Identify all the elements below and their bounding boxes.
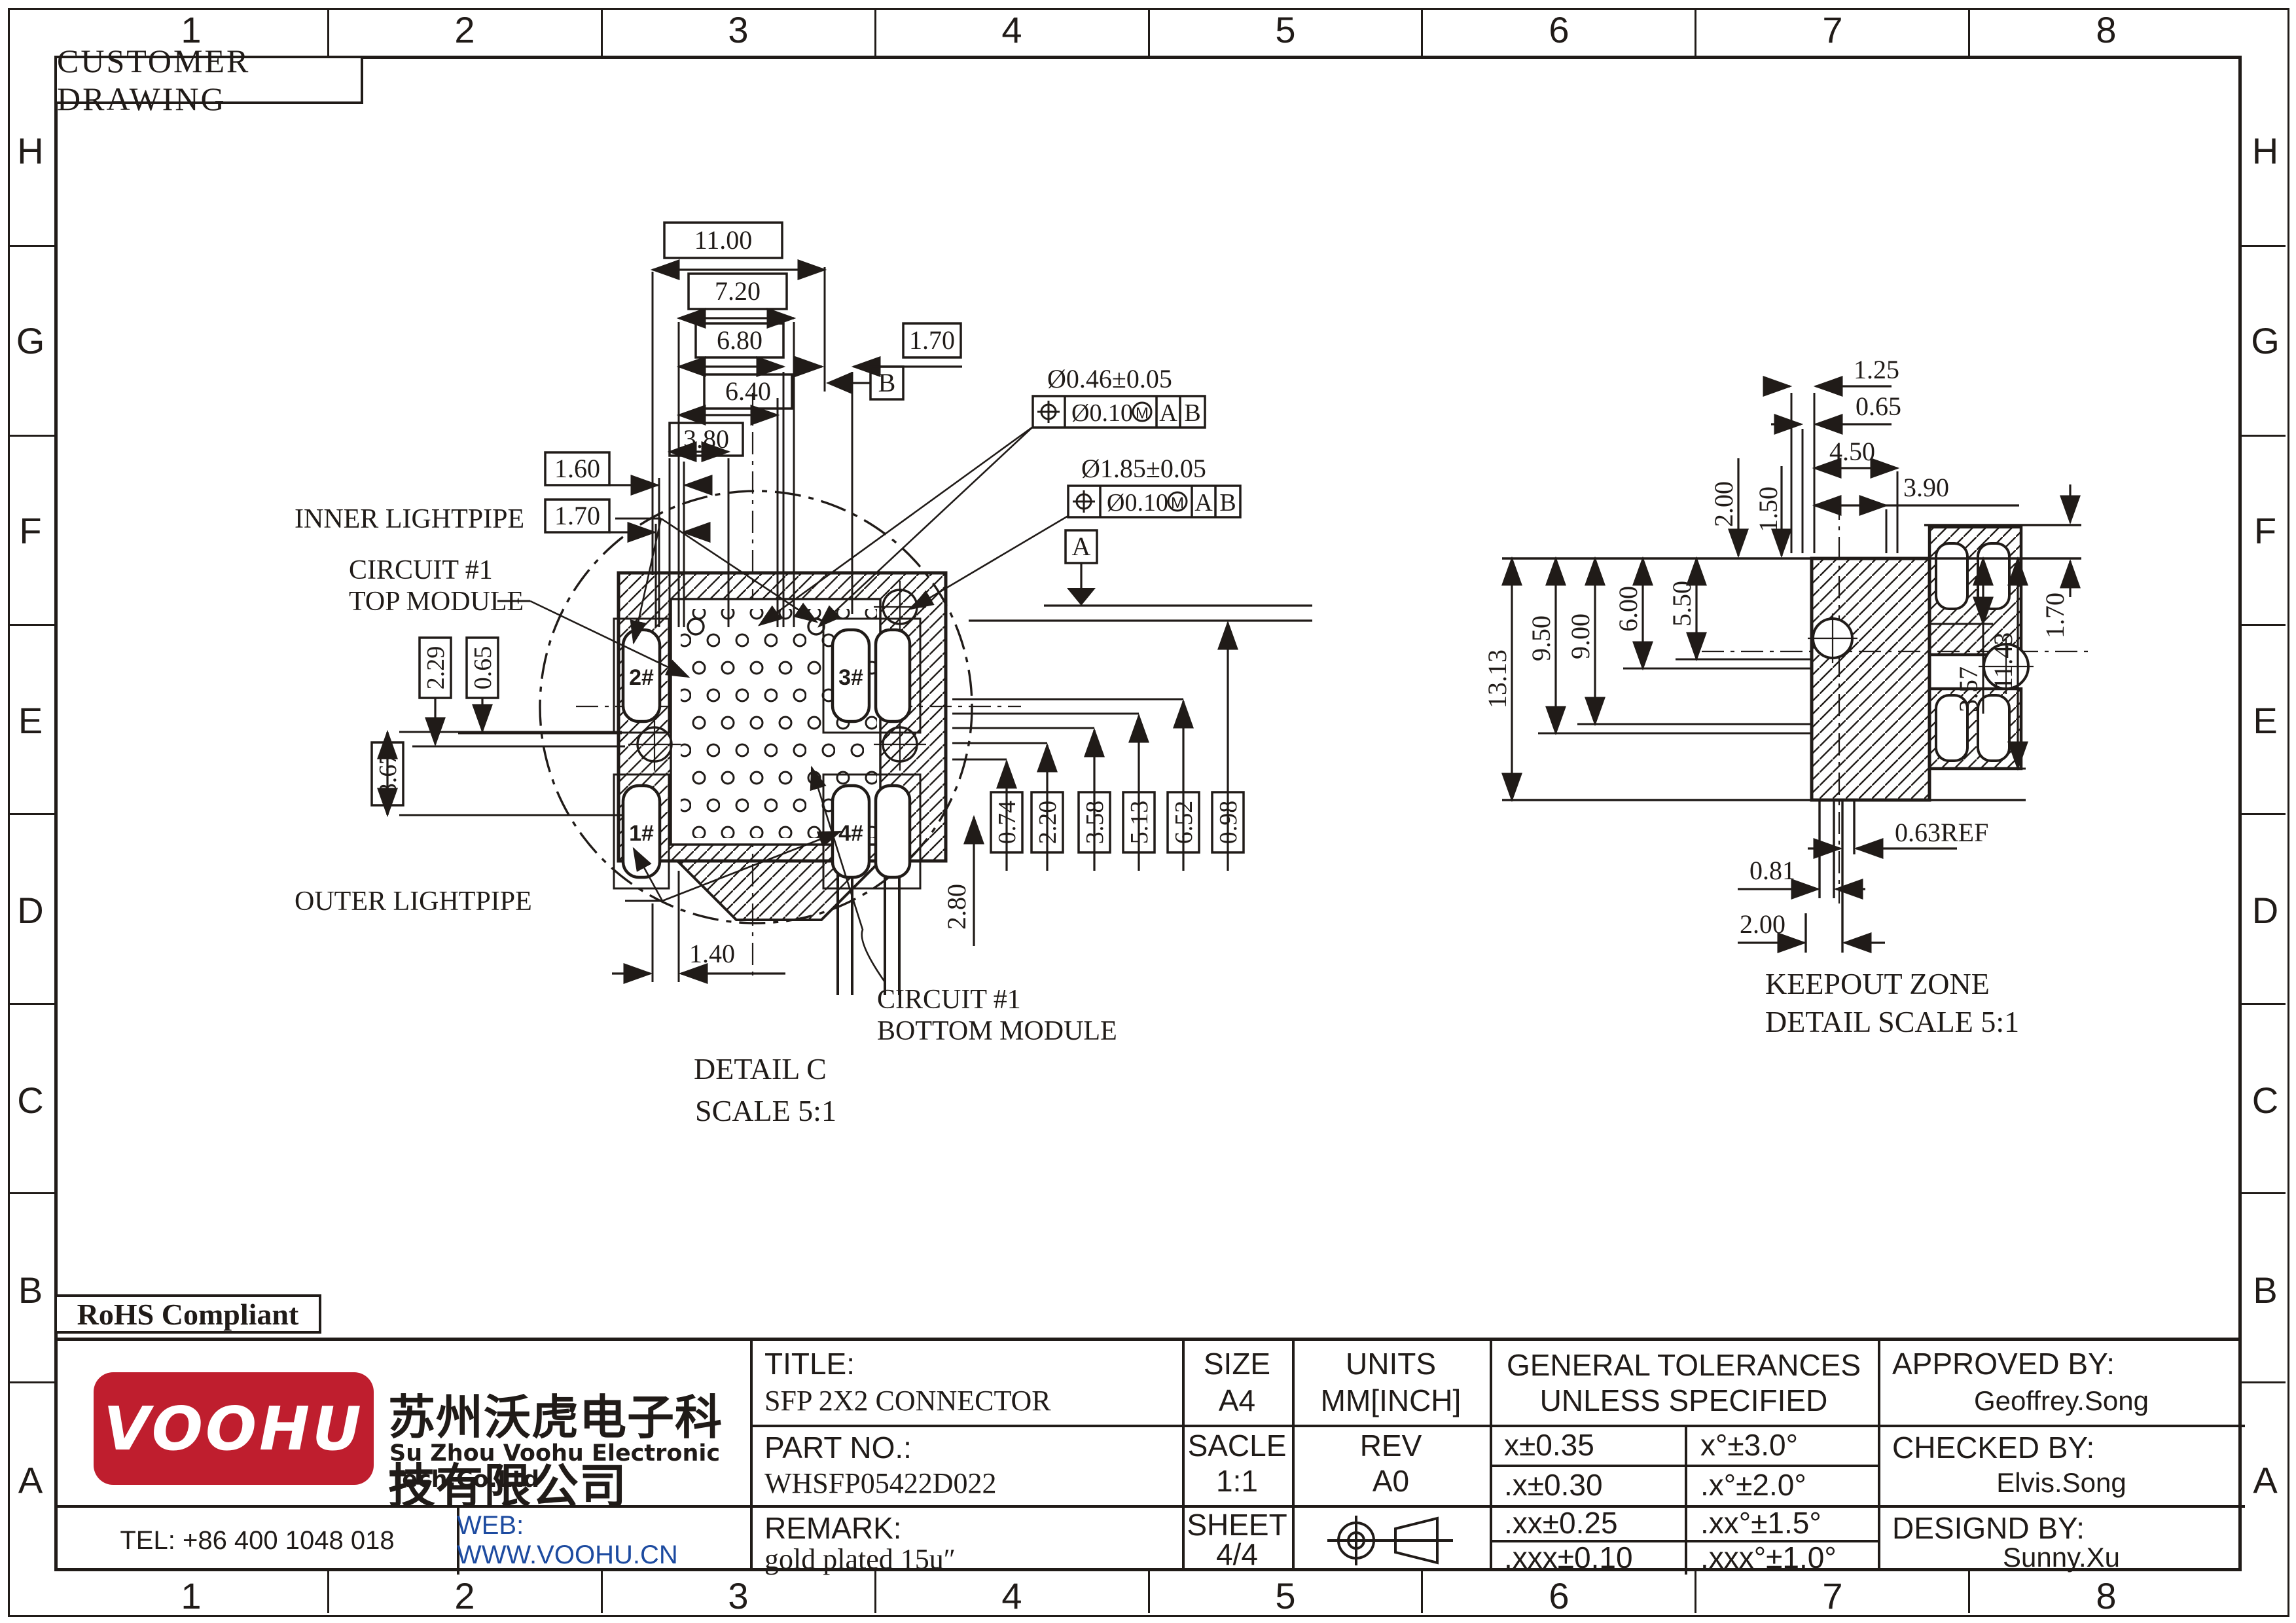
keepout-dims-left: 13.13 9.50 9.00 6.00 5.50	[1482, 558, 1812, 800]
dim-6-00: 6.00	[1613, 586, 1643, 632]
grid-col-label: 5	[1149, 5, 1422, 54]
fcf2-tol: Ø0.10	[1107, 489, 1168, 517]
designed-by-label: DESIGND BY:	[1892, 1510, 2085, 1546]
tol-lin-1: .x±0.30	[1504, 1465, 1685, 1505]
dim-5-13: 5.13	[1126, 801, 1153, 845]
dim-0-65: 0.65	[469, 646, 497, 690]
voohu-logo: VOOHU	[94, 1372, 374, 1485]
datum-b-label: B	[878, 368, 896, 397]
grid-row-label: H	[2242, 56, 2288, 246]
checked-by-label: CHECKED BY:	[1892, 1430, 2094, 1465]
dim-0-65k: 0.65	[1856, 392, 1901, 421]
dim-11-43: 11.43	[1988, 632, 2018, 691]
dim-9-50: 9.50	[1526, 615, 1556, 661]
dim-1-50: 1.50	[1753, 486, 1783, 532]
customer-drawing-badge: CUSTOMER DRAWING	[54, 56, 363, 104]
dim-1-70k: 1.70	[2040, 593, 2070, 638]
fcf1-tol: Ø0.10	[1071, 399, 1133, 427]
title-label: TITLE:	[764, 1346, 855, 1381]
grid-row-label: C	[2242, 1005, 2288, 1195]
detail-c-view: 2# 3# 1# 4# 11.00	[275, 196, 1381, 1139]
dim-0-98: 0.98	[1215, 801, 1242, 845]
approved-by-value: Geoffrey.Song	[1878, 1381, 2245, 1421]
tol-lin-3: .xxx±0.10	[1504, 1540, 1685, 1575]
dim-9-00: 9.00	[1566, 613, 1595, 659]
slot-1-label: 1#	[629, 821, 654, 846]
dim-1-60: 1.60	[554, 454, 600, 483]
dimensions-top: 11.00 7.20 6.80 1.70 6.40 3.80 1.60	[545, 223, 962, 532]
keepout-title: KEEPOUT ZONE DETAIL SCALE 5:1	[1765, 967, 2019, 1038]
grid-col-label: 7	[1696, 5, 1969, 54]
units-label: UNITS	[1292, 1345, 1490, 1383]
grid-row-label: G	[2242, 246, 2288, 435]
tol-ang-0: x°±3.0°	[1700, 1425, 1878, 1465]
dim-7-20: 7.20	[715, 276, 761, 306]
checked-by-value: Elvis.Song	[1878, 1464, 2245, 1502]
grid-row-label: F	[7, 435, 54, 625]
rohs-badge: RoHS Compliant	[54, 1294, 321, 1334]
tol-ang-1: .x°±2.0°	[1700, 1465, 1878, 1505]
dim-0-74: 0.74	[994, 801, 1021, 845]
grid-col-label: 7	[1696, 1574, 1969, 1617]
inner-lightpipe-label: INNER LIGHTPIPE	[295, 504, 524, 534]
dim-1-40: 1.40	[689, 939, 735, 968]
dim-2-20: 2.20	[1034, 801, 1062, 845]
grid-col-label: 6	[1422, 1574, 1696, 1617]
grid-row-label: F	[2242, 435, 2288, 625]
dimensions-left: 2.29 0.65 3.67	[372, 638, 625, 815]
rev-value: A0	[1292, 1463, 1490, 1499]
part-no-value: WHSFP05422D022	[764, 1467, 997, 1500]
dim-3-80: 3.80	[683, 424, 729, 454]
datum-b: B	[826, 367, 903, 399]
fcf2-datum2: B	[1219, 489, 1236, 517]
dim-1-70-left: 1.70	[554, 501, 600, 530]
dim-13-13: 13.13	[1482, 649, 1512, 708]
grid-col-label: 5	[1149, 1574, 1422, 1617]
fcf1-datum2: B	[1184, 399, 1200, 427]
outer-lightpipe-label: OUTER LIGHTPIPE	[295, 886, 532, 917]
divider	[1878, 1341, 1880, 1568]
grid-row-label: C	[7, 1005, 54, 1195]
fcf1-datum1: A	[1159, 399, 1177, 427]
grid-row-label: B	[2242, 1195, 2288, 1385]
divider	[750, 1341, 753, 1568]
dim-3-58: 3.58	[1081, 801, 1109, 845]
grid-row-label: E	[7, 625, 54, 815]
grid-row-label: A	[2242, 1385, 2288, 1575]
dim-11-00: 11.00	[694, 225, 753, 255]
dim-4-50: 4.50	[1829, 437, 1875, 466]
grid-col-label: 2	[328, 1574, 601, 1617]
keepout-title-2: DETAIL SCALE 5:1	[1765, 1005, 2019, 1038]
tolerances-header: GENERAL TOLERANCES UNLESS SPECIFIED	[1490, 1341, 1878, 1425]
dim-2-29: 2.29	[422, 646, 450, 690]
position-icon	[1037, 401, 1060, 423]
dim-3-57: 3.57	[1954, 666, 1983, 712]
fcf2-datum1: A	[1194, 489, 1213, 517]
projection-symbol	[1292, 1508, 1490, 1573]
detail-c-scale: SCALE 5:1	[695, 1094, 836, 1127]
grid-row-label: H	[7, 56, 54, 246]
remark-value: gold plated 15u″	[764, 1542, 956, 1576]
company-tel: TEL: +86 400 1048 018	[58, 1508, 457, 1573]
rev-label: REV	[1292, 1427, 1490, 1464]
grid-row-label: A	[7, 1385, 54, 1575]
slot-3-label: 3#	[838, 665, 863, 690]
dim-2-80: 2.80	[942, 884, 971, 930]
keepout-pins	[1806, 800, 1854, 953]
tol-ang-3: .xxx°±1.0°	[1700, 1540, 1878, 1575]
grid-col-label: 1	[54, 1574, 328, 1617]
grid-col-label: 2	[328, 5, 601, 54]
grid-col-label: 6	[1422, 5, 1696, 54]
connector-body: 2# 3# 1# 4#	[614, 573, 946, 995]
tol-lin-0: x±0.35	[1504, 1425, 1685, 1465]
dim-2-00-top: 2.00	[1709, 481, 1738, 527]
dim-3-67: 3.67	[374, 752, 402, 796]
title-value: SFP 2X2 CONNECTOR	[764, 1384, 1051, 1417]
size-label: SIZE	[1182, 1345, 1292, 1383]
slot-2-label: 2#	[629, 665, 654, 690]
divider	[1878, 1425, 2245, 1427]
grid-row-label: B	[7, 1195, 54, 1385]
grid-col-label: 3	[601, 5, 875, 54]
dim-6-52: 6.52	[1170, 801, 1198, 845]
slot-4-label: 4#	[838, 821, 863, 846]
dim-1-25: 1.25	[1854, 355, 1899, 384]
size-value: A4	[1182, 1381, 1292, 1419]
designed-by-value: Sunny.Xu	[1878, 1541, 2245, 1574]
position-icon	[1073, 490, 1095, 513]
title-block: VOOHU 苏州沃虎电子科技有限公司 Su Zhou Voohu Electro…	[54, 1338, 2242, 1571]
tol-ang-2: .xx°±1.5°	[1700, 1505, 1878, 1540]
tol-header-1: GENERAL TOLERANCES	[1507, 1347, 1861, 1383]
grid-col-label: 8	[1969, 5, 2243, 54]
dim-1-70-right: 1.70	[909, 325, 955, 355]
dim-6-40: 6.40	[725, 376, 771, 406]
tol-header-2: UNLESS SPECIFIED	[1540, 1383, 1828, 1418]
circuit1-bottom-label-2: BOTTOM MODULE	[877, 1016, 1117, 1046]
tol-lin-2: .xx±0.25	[1504, 1505, 1685, 1540]
grid-row-label: D	[2242, 815, 2288, 1005]
third-angle-projection-icon	[1322, 1509, 1460, 1572]
dim-3-90: 3.90	[1903, 473, 1949, 502]
datum-a-label: A	[1072, 532, 1091, 561]
fcf1-size: Ø0.46±0.05	[1047, 364, 1172, 393]
dim-0-63ref: 0.63REF	[1895, 818, 1988, 847]
sheet-value: 4/4	[1182, 1537, 1292, 1571]
grid-col-label: 4	[875, 5, 1149, 54]
scale-value: 1:1	[1182, 1463, 1292, 1499]
keepout-title-1: KEEPOUT ZONE	[1765, 967, 1990, 1000]
dim-2-00-bottom: 2.00	[1740, 909, 1785, 939]
keepout-view: 1.25 0.65 4.50 3.90 2.00 1.50 13.13	[1427, 354, 2238, 1126]
grid-col-label: 3	[601, 1574, 875, 1617]
circuit1-top-label-1: CIRCUIT #1	[349, 555, 493, 585]
approved-by-label: APPROVED BY:	[1892, 1346, 2115, 1381]
scale-label: SACLE	[1182, 1427, 1292, 1464]
fcf2-mod: M	[1171, 494, 1184, 512]
grid-col-label: 4	[875, 1574, 1149, 1617]
grid-row-label: E	[2242, 625, 2288, 815]
dim-5-50: 5.50	[1667, 581, 1696, 627]
company-name-en: Su Zhou Voohu Electronic Tech.Co.Ltd	[389, 1440, 746, 1493]
units-value: MM[INCH]	[1292, 1381, 1490, 1419]
voohu-logo-text: VOOHU	[103, 1394, 364, 1464]
dimensions-right-stack: 0.74 2.20 3.58 5.13 6.52 0.98	[952, 623, 1244, 871]
grid-row-label: G	[7, 246, 54, 435]
dim-6-80: 6.80	[717, 325, 762, 355]
fcf1-mod: M	[1136, 405, 1149, 422]
remark-label: REMARK:	[764, 1510, 902, 1546]
divider	[1685, 1425, 1687, 1575]
keepout-dims-bottom: 0.63REF 0.81 2.00	[1738, 818, 1988, 943]
drawing-sheet: 1 2 3 4 5 6 7 8 1 2 3 4 5 6 7 8 H G F E …	[0, 0, 2296, 1623]
dim-0-81: 0.81	[1749, 856, 1795, 885]
circuit1-bottom-label-1: CIRCUIT #1	[877, 985, 1021, 1015]
grid-col-label: 8	[1969, 1574, 2243, 1617]
detail-c-title: DETAIL C	[694, 1052, 827, 1085]
company-web: WEB: WWW.VOOHU.CN	[457, 1508, 750, 1573]
fcf2-size: Ø1.85±0.05	[1081, 454, 1206, 483]
divider	[1878, 1505, 2245, 1508]
part-no-label: PART NO.:	[764, 1430, 912, 1465]
grid-row-label: D	[7, 815, 54, 1005]
